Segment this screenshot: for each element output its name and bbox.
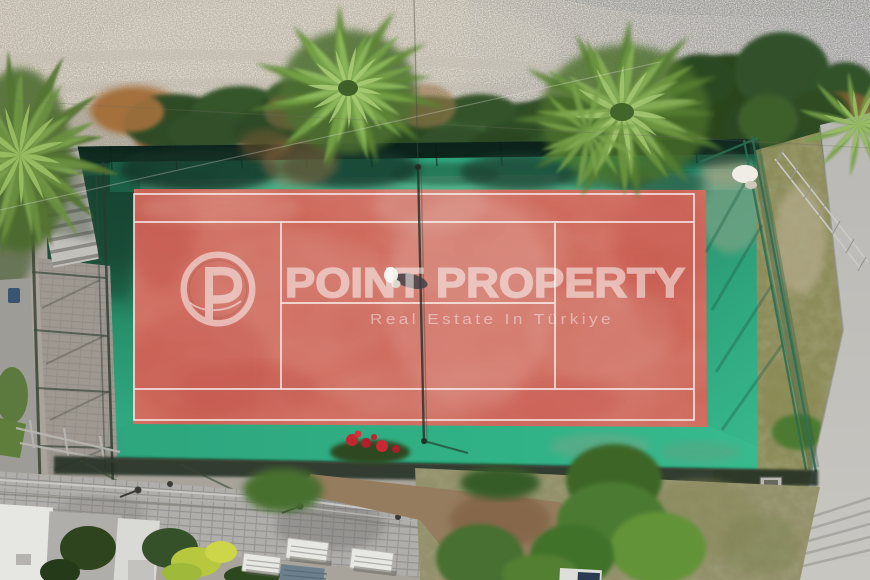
- svg-text:Real Estate In Türkiye: Real Estate In Türkiye: [370, 311, 614, 328]
- svg-text:POINT PROPERTY: POINT PROPERTY: [285, 259, 685, 306]
